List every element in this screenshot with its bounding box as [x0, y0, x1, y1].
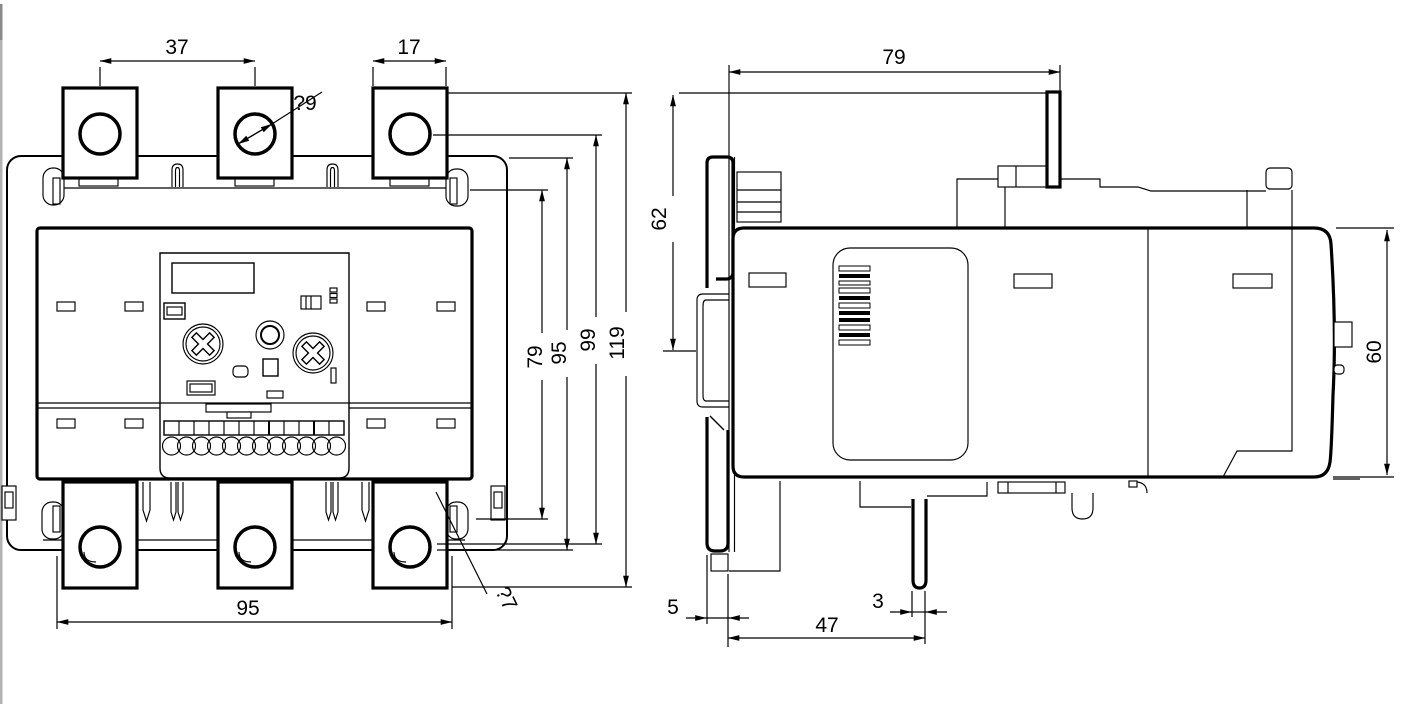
dimension-drawing: 37 17 ?9 79 95	[0, 0, 1404, 727]
left-edge-strip	[0, 4, 3, 704]
din-clip-lower[interactable]	[707, 417, 728, 551]
clip-tab	[711, 554, 728, 571]
terminal-lugs-bottom	[63, 482, 447, 588]
top-superstructure	[957, 92, 1292, 228]
dim-height-95: 95	[548, 341, 571, 364]
dim-height-119: 119	[606, 326, 629, 359]
mounting-pin	[913, 499, 926, 588]
bottom-foot	[1072, 493, 1093, 519]
device-body-side	[733, 228, 1334, 477]
dim-terminal-pitch: 37	[165, 36, 188, 59]
dim-terminal-span: 95	[236, 597, 259, 620]
front-view: 37 17 ?9 79 95	[2, 36, 632, 629]
right-edge-tabs	[1333, 322, 1360, 479]
clip-housing-outline	[729, 481, 780, 571]
dim-pin-width-3: 3	[872, 590, 884, 613]
barcode	[839, 266, 870, 345]
top-post	[1047, 92, 1060, 187]
din-rail-profile	[697, 294, 729, 407]
dim-terminal-width: 17	[397, 36, 420, 59]
dim-body-height-60: 60	[1363, 340, 1386, 363]
dim-rail-drop-62: 62	[648, 207, 671, 230]
dim-hole-dia-top: ?9	[293, 92, 316, 115]
dim-hole-dia-bottom: ?7	[491, 583, 522, 614]
dim-pin-offset-47: 47	[815, 614, 838, 637]
louver-stack	[737, 172, 781, 222]
terminal-lugs-top	[63, 88, 447, 186]
technical-drawing-page: 37 17 ?9 79 95	[0, 0, 1404, 727]
dim-clip-5: 5	[667, 596, 679, 619]
dim-height-79: 79	[524, 345, 547, 368]
dim-depth-79: 79	[882, 46, 905, 69]
bottom-structures	[860, 481, 1147, 588]
clip-pawl	[710, 416, 724, 430]
side-view: 79 62 60 5 47	[648, 46, 1394, 647]
dim-height-99: 99	[577, 328, 600, 351]
